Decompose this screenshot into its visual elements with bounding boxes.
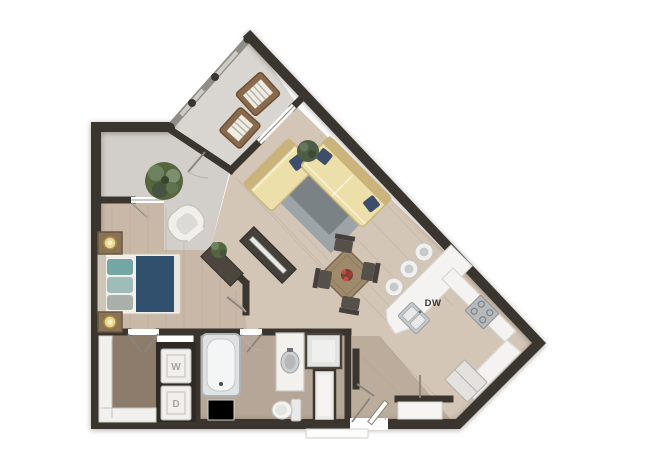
vanity — [276, 333, 304, 391]
bath-mat — [208, 400, 234, 420]
floor-plan-svg: W D DW — [0, 0, 650, 454]
dishwasher-label: DW — [425, 298, 442, 309]
bed-pillow-grey — [107, 295, 133, 310]
bathtub — [202, 334, 240, 396]
dryer: D — [161, 386, 191, 420]
railing-post — [211, 73, 219, 81]
railing-post — [166, 123, 175, 132]
shower — [306, 334, 341, 368]
nightstand-top — [98, 232, 122, 254]
railing-post — [188, 99, 196, 107]
entry-plant — [145, 162, 183, 200]
toilet — [272, 399, 301, 421]
balcony-living-wall-b — [293, 100, 300, 107]
dryer-label: D — [172, 399, 179, 410]
linen-closet — [314, 370, 335, 421]
sofa-side-plant — [297, 140, 319, 162]
desk-plant — [211, 242, 227, 258]
washer: W — [161, 349, 191, 383]
tub-drain — [219, 382, 223, 386]
bed-pillow-sage — [107, 277, 133, 293]
bed-blanket — [136, 256, 174, 312]
headboard — [98, 254, 106, 314]
laundry-stack: W D — [156, 342, 196, 422]
hall-entry-closet — [398, 402, 442, 419]
bed-pillow-teal — [107, 259, 133, 275]
bed-foot-fold — [174, 256, 180, 312]
washer-label: W — [171, 362, 181, 373]
entry-stoop — [306, 429, 368, 438]
floor-plan-page: W D DW — [0, 0, 650, 454]
bed — [98, 254, 180, 314]
nightstand-bottom — [98, 312, 122, 332]
railing-post — [244, 35, 253, 44]
faucet — [287, 348, 293, 352]
